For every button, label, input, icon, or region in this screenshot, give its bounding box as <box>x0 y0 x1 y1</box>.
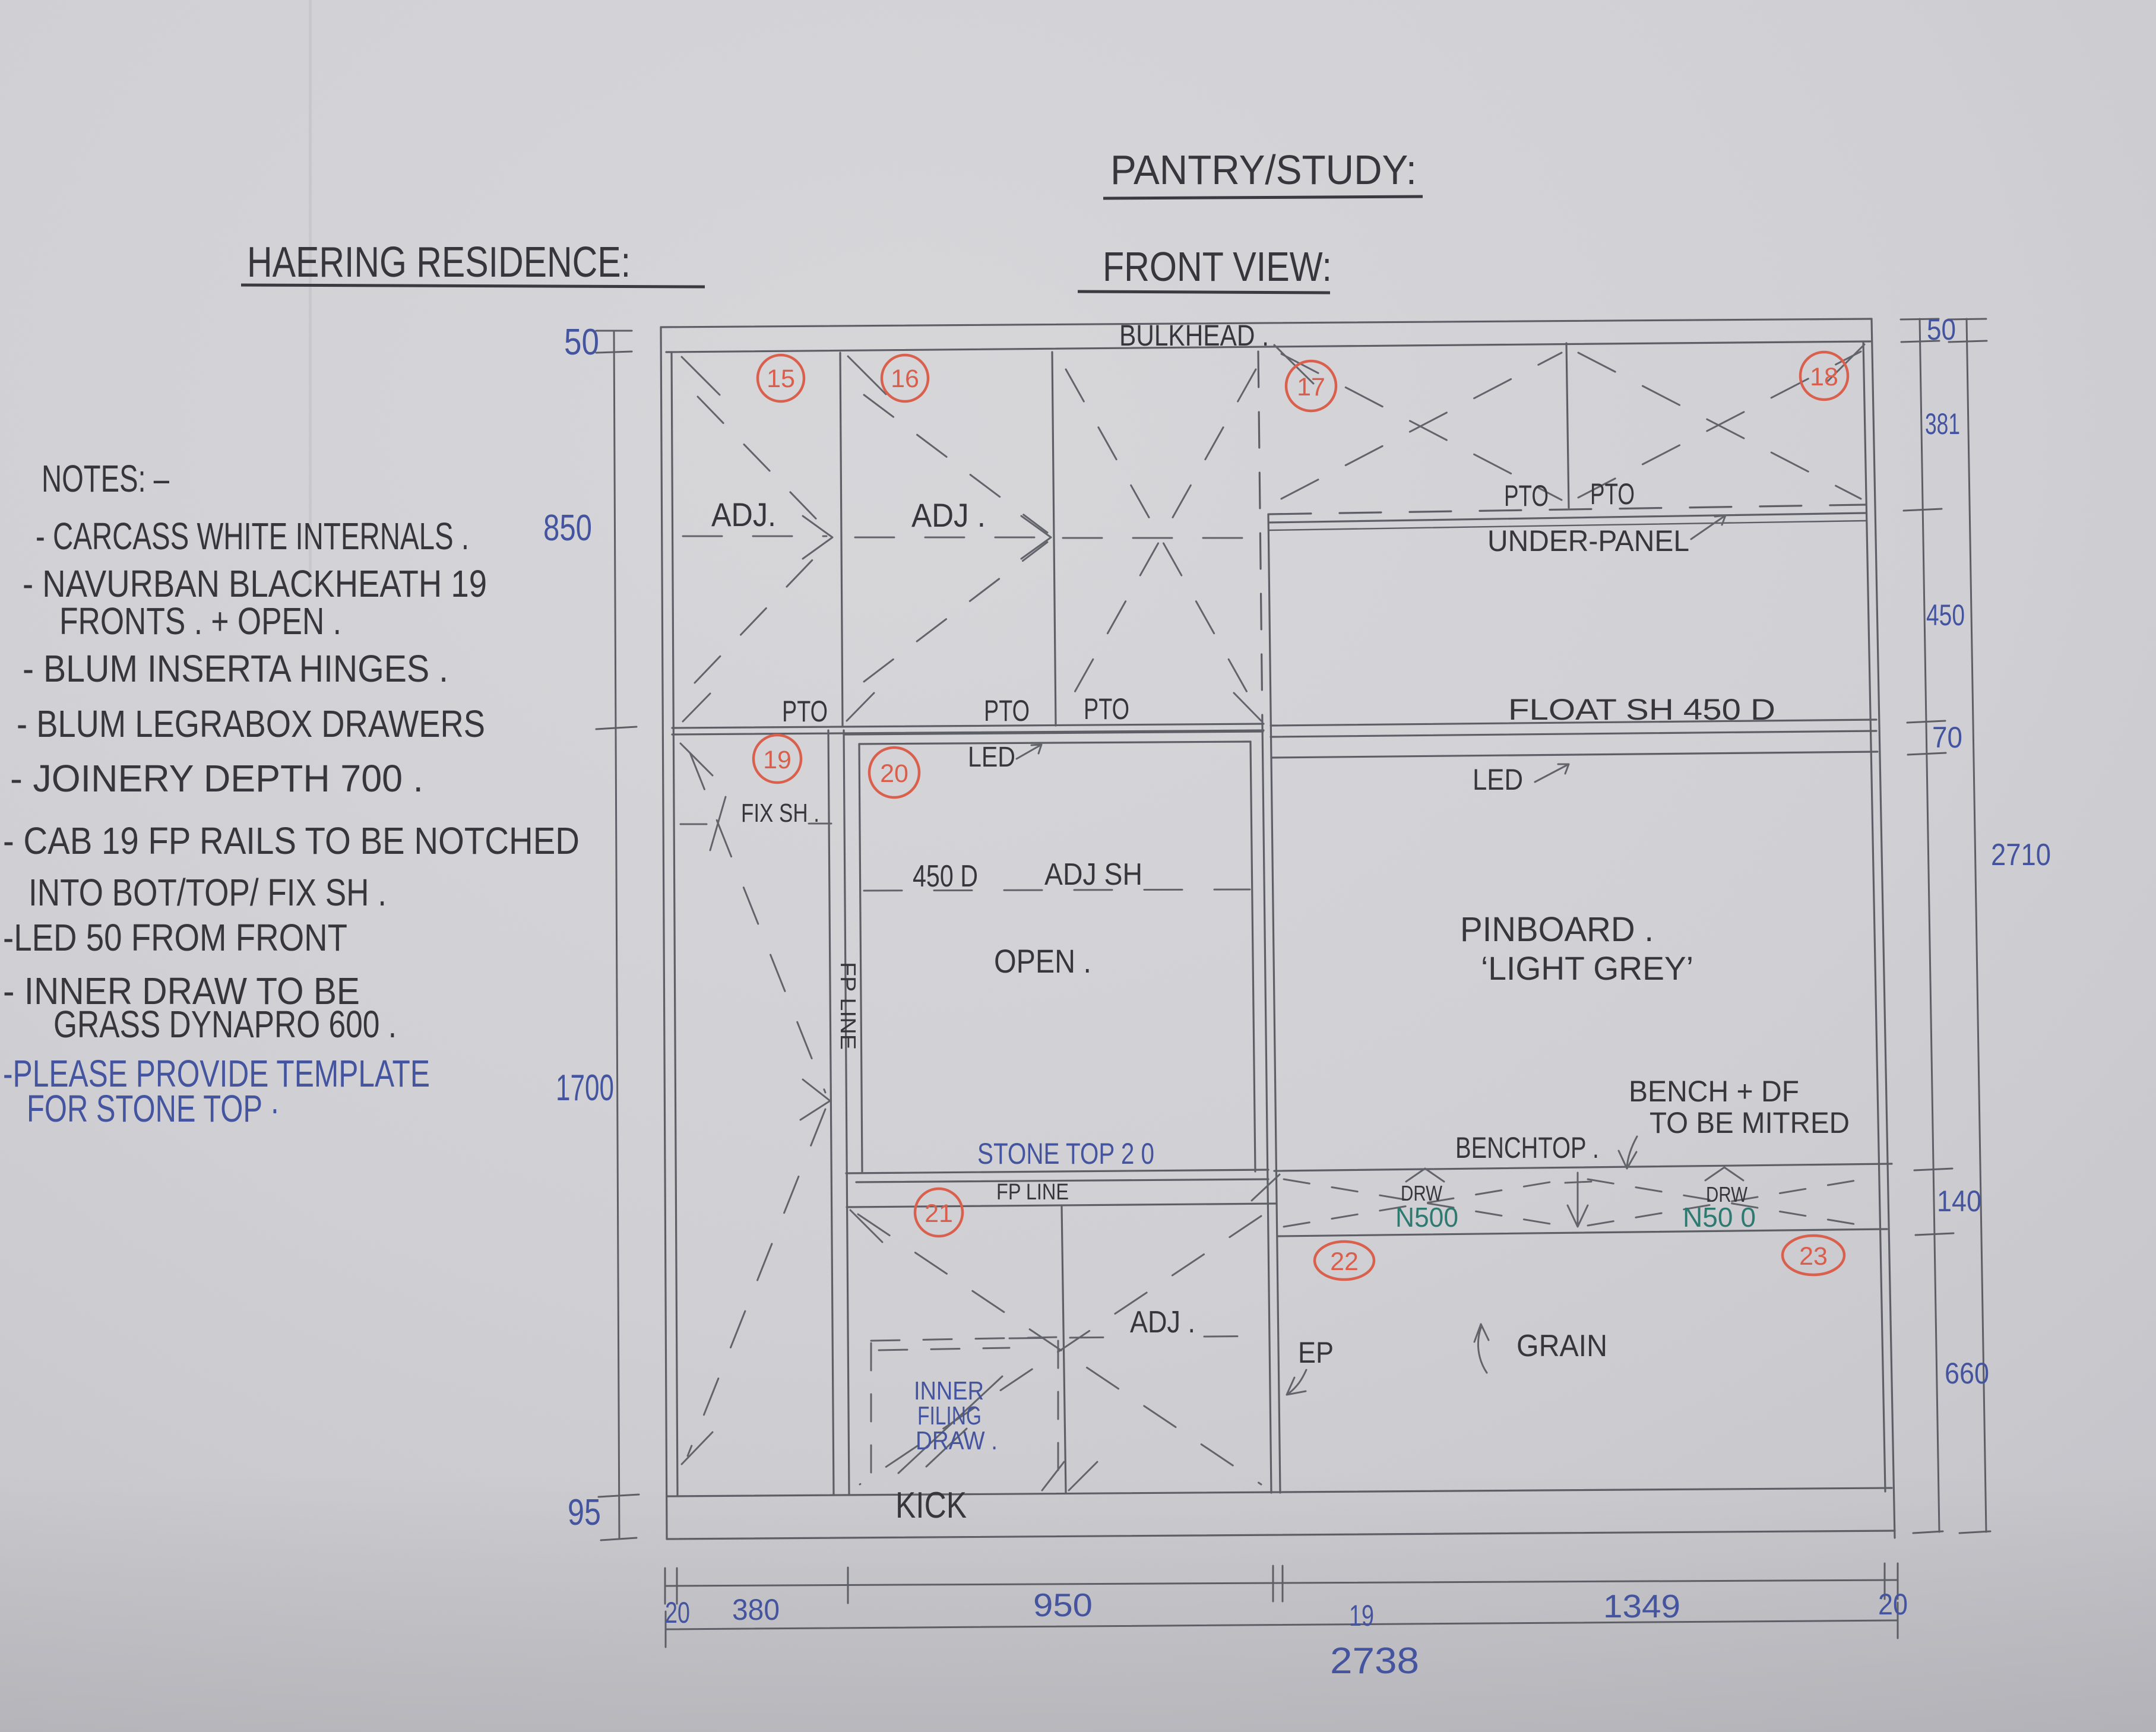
svg-text:50: 50 <box>564 322 599 363</box>
svg-text:GRASS DYNAPRO 600 .: GRASS DYNAPRO 600 . <box>53 1003 397 1046</box>
svg-text:FOR STONE TOP ·: FOR STONE TOP · <box>27 1087 280 1130</box>
svg-text:17: 17 <box>1297 373 1325 401</box>
svg-text:UNDER-PANEL: UNDER-PANEL <box>1487 524 1689 558</box>
svg-text:2738: 2738 <box>1330 1641 1419 1682</box>
svg-text:140: 140 <box>1937 1185 1981 1218</box>
svg-text:1349: 1349 <box>1603 1588 1680 1625</box>
svg-text:450 D: 450 D <box>913 859 978 894</box>
svg-text:850: 850 <box>543 508 592 549</box>
svg-text:DRAW .: DRAW . <box>916 1426 998 1455</box>
svg-text:BULKHEAD .: BULKHEAD . <box>1119 319 1269 352</box>
svg-text:FIX SH .: FIX SH . <box>741 799 819 828</box>
svg-text:1700: 1700 <box>556 1068 614 1109</box>
svg-text:PANTRY/STUDY:: PANTRY/STUDY: <box>1110 147 1417 193</box>
svg-text:950: 950 <box>1033 1587 1093 1623</box>
svg-text:15: 15 <box>767 365 795 393</box>
svg-text:PINBOARD .: PINBOARD . <box>1460 910 1654 949</box>
svg-text:-LED 50 FROM FRONT: -LED 50 FROM FRONT <box>3 916 347 959</box>
svg-text:16: 16 <box>891 365 919 393</box>
svg-text:FP LINE: FP LINE <box>996 1180 1069 1205</box>
svg-text:GRAIN: GRAIN <box>1517 1329 1607 1363</box>
svg-text:ADJ .: ADJ . <box>1130 1305 1195 1340</box>
svg-text:- BLUM INSERTA HINGES .: - BLUM INSERTA HINGES . <box>23 647 448 690</box>
svg-text:LED: LED <box>968 742 1015 773</box>
svg-text:95: 95 <box>568 1492 601 1533</box>
svg-text:20: 20 <box>1878 1588 1908 1621</box>
svg-text:19: 19 <box>1349 1599 1374 1632</box>
svg-text:- CARCASS WHITE INTERNALS .: - CARCASS WHITE INTERNALS . <box>36 515 469 558</box>
svg-text:HAERING RESIDENCE:: HAERING RESIDENCE: <box>247 239 631 286</box>
svg-text:TO BE MITRED: TO BE MITRED <box>1650 1106 1850 1139</box>
svg-text:660: 660 <box>1945 1357 1989 1390</box>
svg-text:18: 18 <box>1810 363 1838 391</box>
svg-text:FP LINE: FP LINE <box>836 962 860 1050</box>
svg-text:21: 21 <box>925 1199 953 1228</box>
svg-text:PTO: PTO <box>1590 477 1635 511</box>
svg-text:OPEN .: OPEN . <box>994 942 1091 980</box>
svg-text:- BLUM LEGRABOX DRAWERS: - BLUM LEGRABOX DRAWERS <box>17 702 485 745</box>
svg-text:450: 450 <box>1926 599 1965 632</box>
svg-text:23: 23 <box>1799 1242 1828 1271</box>
svg-text:ADJ SH: ADJ SH <box>1044 857 1142 892</box>
svg-text:FLOAT SH 450 D: FLOAT SH 450 D <box>1508 693 1775 726</box>
svg-text:- JOINERY DEPTH 700 .: - JOINERY DEPTH 700 . <box>10 757 423 800</box>
svg-text:FRONTS . + OPEN .: FRONTS . + OPEN . <box>59 600 341 642</box>
svg-text:19: 19 <box>763 746 792 774</box>
svg-text:KICK: KICK <box>895 1485 967 1526</box>
svg-text:FRONT VIEW:: FRONT VIEW: <box>1103 243 1332 290</box>
svg-text:22: 22 <box>1330 1247 1359 1276</box>
svg-text:ADJ.: ADJ. <box>711 496 776 533</box>
svg-text:BENCH + DF: BENCH + DF <box>1629 1075 1799 1108</box>
svg-text:380: 380 <box>732 1593 780 1626</box>
svg-text:70: 70 <box>1932 721 1962 754</box>
svg-text:‘LIGHT GREY’: ‘LIGHT GREY’ <box>1481 949 1693 987</box>
svg-text:ADJ .: ADJ . <box>911 496 986 534</box>
svg-text:LED: LED <box>1473 763 1523 796</box>
svg-text:20: 20 <box>665 1596 690 1629</box>
svg-text:PTO: PTO <box>1504 479 1549 512</box>
svg-text:381: 381 <box>1925 407 1960 441</box>
svg-text:NOTES: –: NOTES: – <box>42 457 169 500</box>
svg-text:EP: EP <box>1298 1336 1334 1369</box>
svg-text:INTO BOT/TOP/ FIX SH .: INTO BOT/TOP/ FIX SH . <box>29 871 387 914</box>
svg-text:- CAB 19 FP RAILS TO BE NOTCHE: - CAB 19 FP RAILS TO BE NOTCHED <box>3 819 580 862</box>
svg-text:STONE TOP 2 0: STONE TOP 2 0 <box>977 1137 1154 1170</box>
svg-text:PTO: PTO <box>782 695 828 728</box>
svg-text:- NAVURBAN BLACKHEATH 19: - NAVURBAN BLACKHEATH 19 <box>23 562 487 605</box>
svg-text:50: 50 <box>1927 313 1956 346</box>
svg-text:20: 20 <box>880 759 908 788</box>
svg-text:N50 0: N50 0 <box>1683 1202 1756 1233</box>
svg-text:PTO: PTO <box>1084 692 1129 726</box>
svg-text:N500: N500 <box>1395 1202 1458 1233</box>
svg-text:BENCHTOP .: BENCHTOP . <box>1455 1131 1599 1164</box>
svg-text:2710: 2710 <box>1991 838 2051 872</box>
svg-text:PTO: PTO <box>984 694 1030 727</box>
